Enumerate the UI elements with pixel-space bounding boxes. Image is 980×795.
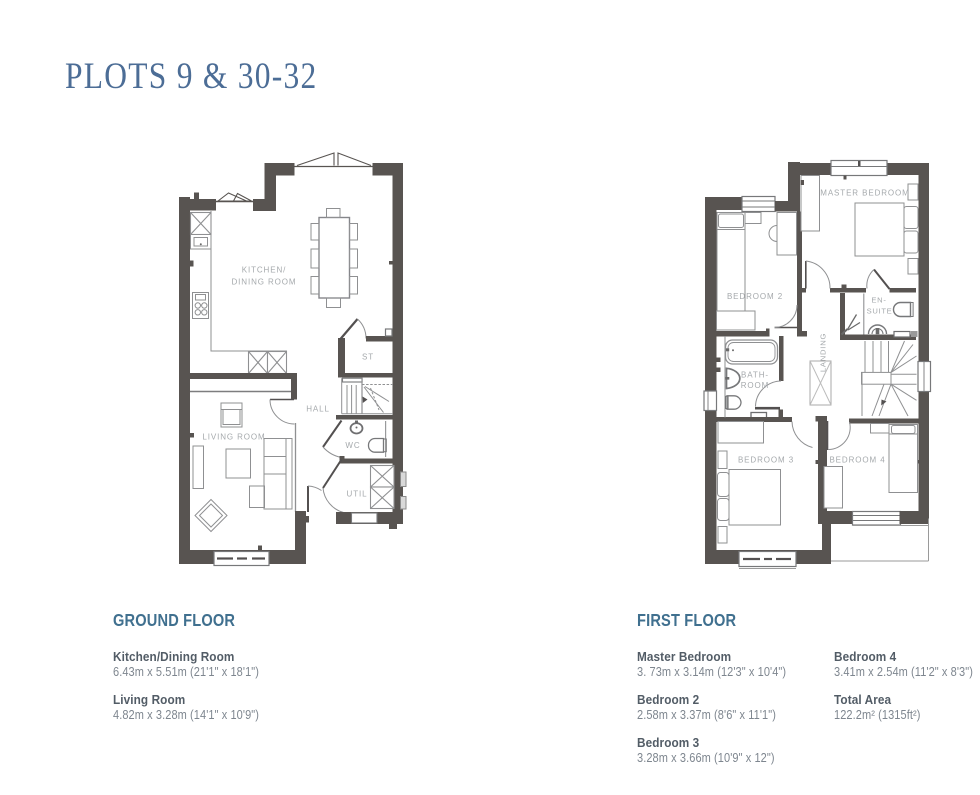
svg-text:BEDROOM 4: BEDROOM 4: [829, 456, 885, 465]
svg-text:MASTER BEDROOM: MASTER BEDROOM: [820, 189, 910, 198]
svg-text:KITCHEN/: KITCHEN/: [242, 266, 287, 275]
svg-text:UTIL: UTIL: [347, 490, 368, 499]
svg-text:ROOM: ROOM: [741, 381, 770, 390]
svg-text:EN-: EN-: [871, 296, 886, 305]
svg-text:WC: WC: [345, 441, 360, 450]
svg-text:SUITE: SUITE: [867, 307, 893, 316]
svg-text:LANDING: LANDING: [819, 333, 828, 372]
svg-text:BATH-: BATH-: [741, 371, 769, 380]
svg-text:HALL: HALL: [306, 405, 330, 414]
svg-text:DINING ROOM: DINING ROOM: [231, 278, 296, 287]
svg-text:LIVING ROOM: LIVING ROOM: [202, 433, 265, 442]
svg-text:ST: ST: [362, 353, 374, 362]
svg-text:BEDROOM 3: BEDROOM 3: [738, 456, 794, 465]
svg-text:BEDROOM 2: BEDROOM 2: [727, 292, 783, 301]
